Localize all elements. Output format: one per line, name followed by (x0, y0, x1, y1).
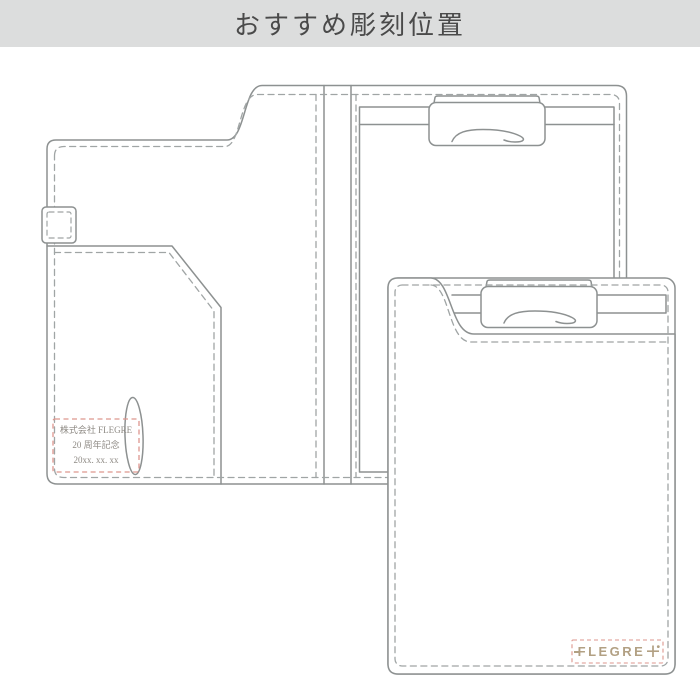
closed-folder-front-cover (388, 278, 675, 674)
logo-plus-icon (646, 644, 661, 659)
closed-clip-body (481, 287, 597, 328)
engraving-line-anniversary: 20 周年記念 (72, 438, 119, 453)
brand-logo-text: FLEGRE (578, 644, 646, 659)
engraving-position-diagram (0, 0, 700, 700)
closed-folder (388, 278, 675, 674)
clip-body (429, 103, 545, 146)
engraving-line-company: 株式会社 FLEGRE (60, 423, 132, 438)
page: おすすめ彫刻位置 (0, 0, 700, 700)
clipboard-clip-icon (429, 96, 545, 146)
engraving-line-date: 20xx. xx. xx (74, 453, 119, 468)
brand-logo: FLEGRE (572, 640, 663, 663)
closed-clipboard-clip-icon (481, 280, 597, 328)
engraving-sample-text: 株式会社 FLEGRE 20 周年記念 20xx. xx. xx (53, 419, 139, 472)
